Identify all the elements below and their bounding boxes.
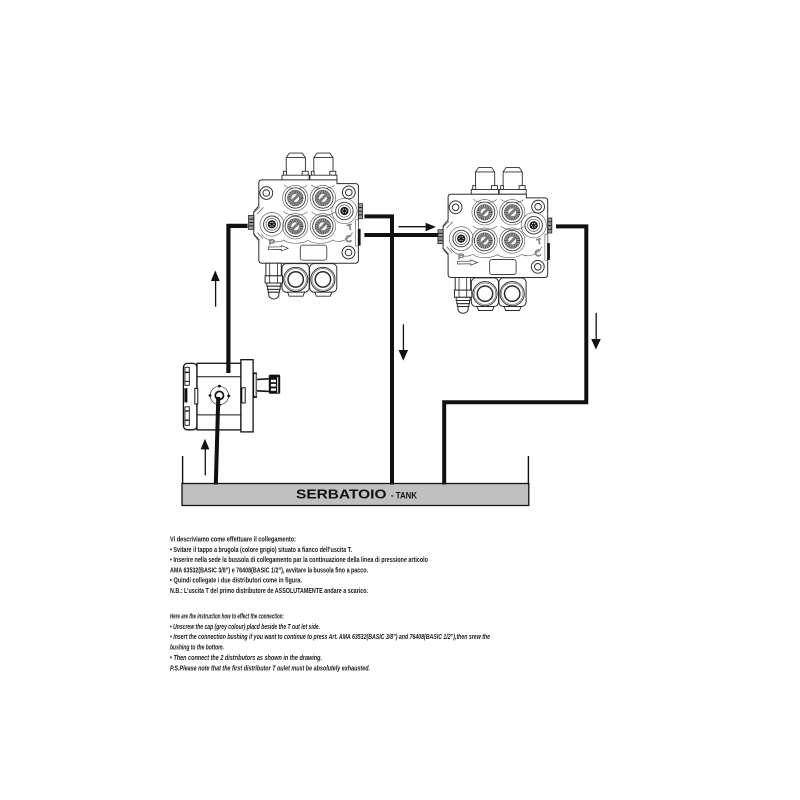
svg-text:N.B.: L’uscita T del primo dis: N.B.: L’uscita T del primo distributore … (170, 586, 368, 595)
svg-text:- TANK: - TANK (391, 490, 417, 500)
svg-text:bushing to the bottom.: bushing to the bottom. (170, 643, 224, 652)
svg-text:Vi descriviamo come effettuare: Vi descriviamo come effettuare il colleg… (170, 535, 296, 544)
svg-text:• Svitare il tappo a brugola (: • Svitare il tappo a brugola (colore gri… (170, 545, 352, 554)
svg-text:Here are the instruction how t: Here are the instruction how to effect t… (170, 611, 284, 620)
svg-text:• Insert the connection bushin: • Insert the connection bushing if you w… (170, 632, 490, 641)
svg-text:• Inserire nella sede la busso: • Inserire nella sede la bussola di coll… (170, 555, 428, 564)
svg-text:P.S.Please note that the first: P.S.Please note that the first distribut… (170, 663, 370, 672)
svg-text:• Then connect the 2 distribut: • Then connect the 2 distributors as sho… (170, 653, 322, 662)
svg-text:• Quindi collegate i due distr: • Quindi collegate i due distributori co… (170, 576, 302, 585)
svg-text:SERBATOIO: SERBATOIO (296, 487, 387, 502)
svg-text:AMA 63532(BASIC 3/8”) e 76408(: AMA 63532(BASIC 3/8”) e 76408(BASIC 1/2”… (170, 565, 368, 574)
svg-text:• Unscrew the cap (grey colour: • Unscrew the cap (grey colour) placd be… (170, 622, 320, 631)
